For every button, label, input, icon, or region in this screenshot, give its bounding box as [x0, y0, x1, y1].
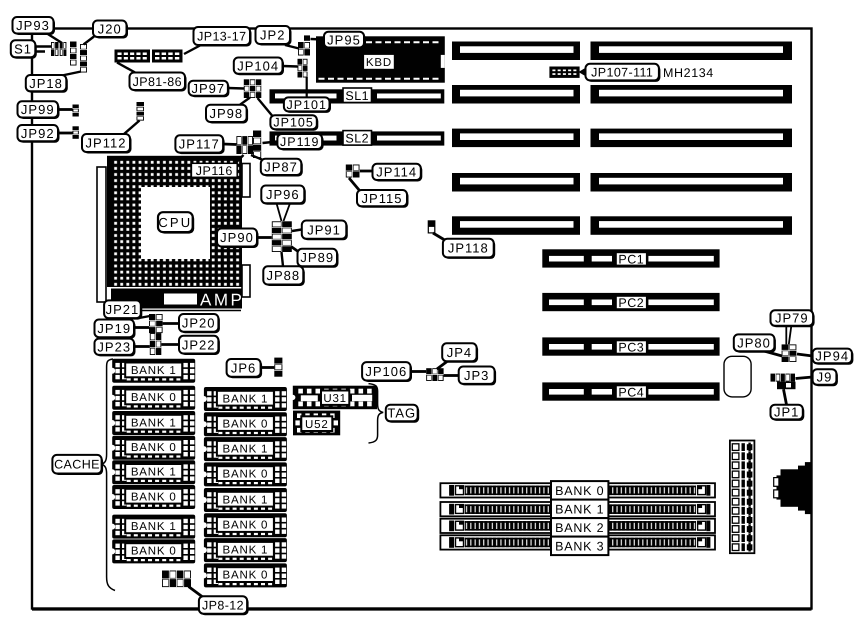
svg-text:JP1: JP1: [774, 405, 799, 420]
svg-text:JP98: JP98: [209, 106, 243, 121]
svg-text:JP96: JP96: [266, 187, 300, 202]
svg-text:JP90: JP90: [220, 230, 254, 245]
svg-text:J20: J20: [98, 21, 122, 36]
svg-text:JP116: JP116: [196, 164, 233, 178]
svg-text:U52: U52: [305, 419, 329, 431]
svg-text:JP21: JP21: [106, 302, 140, 317]
svg-text:JP99: JP99: [21, 102, 55, 117]
svg-text:JP22: JP22: [182, 337, 216, 352]
svg-text:JP97: JP97: [191, 81, 225, 96]
svg-text:JP79: JP79: [775, 311, 809, 326]
svg-text:JP88: JP88: [266, 268, 300, 283]
svg-text:JP8-12: JP8-12: [202, 598, 244, 612]
svg-text:BANK 1: BANK 1: [131, 365, 177, 377]
svg-text:U31: U31: [323, 393, 347, 405]
svg-text:JP20: JP20: [182, 316, 216, 331]
svg-text:BANK 1: BANK 1: [131, 417, 177, 429]
svg-text:JP106: JP106: [365, 364, 407, 379]
svg-text:BANK 0: BANK 0: [223, 419, 269, 431]
svg-text:JP87: JP87: [264, 160, 298, 175]
svg-text:BANK 1: BANK 1: [223, 494, 269, 506]
svg-text:JP105: JP105: [273, 116, 313, 130]
svg-text:BANK 0: BANK 0: [555, 484, 604, 498]
svg-text:BANK 1: BANK 1: [131, 467, 177, 479]
svg-text:BANK 1: BANK 1: [223, 544, 269, 556]
svg-text:PC3: PC3: [618, 341, 644, 355]
svg-text:JP93: JP93: [16, 18, 50, 33]
svg-text:JP117: JP117: [179, 137, 220, 152]
svg-text:TAG: TAG: [387, 406, 416, 421]
svg-text:KBD: KBD: [366, 57, 392, 69]
svg-text:JP4: JP4: [447, 345, 472, 360]
svg-text:JP112: JP112: [86, 136, 127, 151]
svg-text:JP119: JP119: [280, 135, 320, 149]
svg-text:JP115: JP115: [362, 191, 403, 206]
svg-text:JP81-86: JP81-86: [133, 75, 182, 89]
svg-text:BANK 1: BANK 1: [223, 443, 269, 455]
svg-text:JP118: JP118: [448, 241, 489, 256]
svg-text:PC2: PC2: [618, 296, 644, 310]
svg-text:JP6: JP6: [231, 361, 256, 376]
svg-text:JP2: JP2: [260, 28, 285, 43]
svg-text:BANK 3: BANK 3: [555, 539, 604, 553]
svg-text:BANK 1: BANK 1: [555, 502, 604, 516]
svg-text:SL2: SL2: [345, 131, 369, 145]
svg-text:JP89: JP89: [300, 250, 334, 265]
svg-text:JP91: JP91: [307, 222, 341, 237]
svg-text:JP95: JP95: [327, 32, 361, 47]
svg-text:BANK 0: BANK 0: [223, 520, 269, 532]
svg-text:JP3: JP3: [464, 368, 489, 383]
svg-text:CACHE: CACHE: [54, 458, 100, 472]
svg-text:BANK 0: BANK 0: [223, 469, 269, 481]
svg-text:JP104: JP104: [237, 58, 279, 73]
svg-text:JP80: JP80: [737, 335, 771, 350]
svg-text:BANK 1: BANK 1: [223, 393, 269, 405]
svg-text:BANK 0: BANK 0: [131, 442, 177, 454]
svg-text:S1: S1: [14, 41, 32, 56]
svg-text:JP13-17: JP13-17: [197, 30, 246, 44]
svg-text:MH2134: MH2134: [663, 66, 714, 80]
svg-text:BANK 0: BANK 0: [131, 392, 177, 404]
svg-text:JP18: JP18: [29, 76, 63, 91]
svg-text:BANK 2: BANK 2: [555, 521, 604, 535]
svg-text:BANK 0: BANK 0: [131, 491, 177, 503]
svg-text:JP19: JP19: [97, 321, 131, 336]
svg-text:JP23: JP23: [97, 339, 131, 354]
svg-text:JP114: JP114: [376, 165, 417, 180]
svg-text:JP101: JP101: [286, 98, 326, 112]
svg-text:SL1: SL1: [345, 89, 369, 103]
svg-text:PC4: PC4: [618, 386, 644, 400]
svg-text:AMP: AMP: [200, 291, 244, 310]
svg-text:JP92: JP92: [21, 126, 55, 141]
svg-text:JP107-111: JP107-111: [591, 66, 653, 80]
svg-text:J9: J9: [817, 370, 833, 385]
svg-text:CPU: CPU: [158, 215, 192, 230]
svg-text:BANK 0: BANK 0: [131, 546, 177, 558]
svg-text:BANK 1: BANK 1: [131, 521, 177, 533]
svg-text:PC1: PC1: [618, 252, 644, 266]
svg-text:JP94: JP94: [815, 349, 849, 364]
svg-text:BANK 0: BANK 0: [223, 570, 269, 582]
